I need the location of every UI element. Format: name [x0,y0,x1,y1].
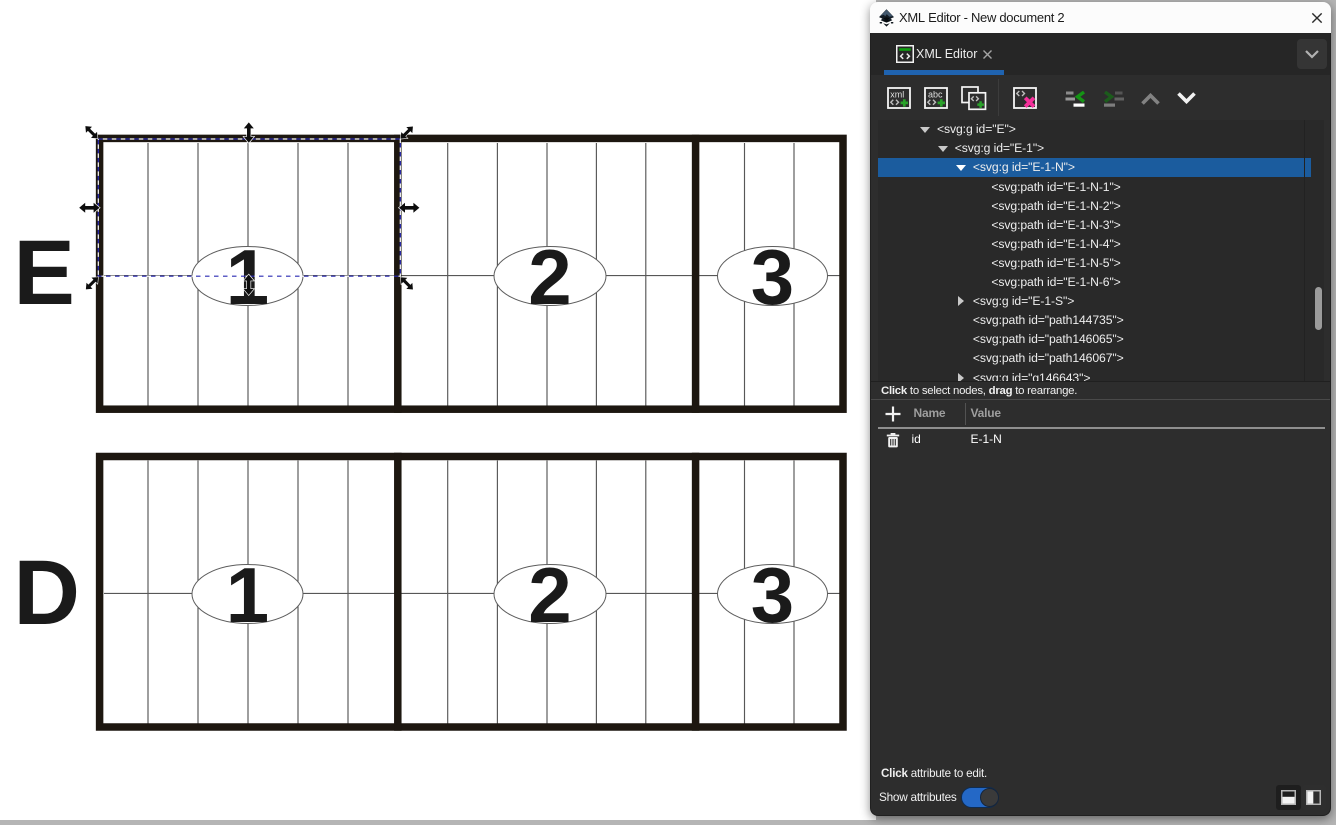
svg-text:D: D [14,542,80,644]
svg-text:E: E [14,222,75,324]
svg-text:3: 3 [751,551,794,639]
svg-text:1: 1 [226,551,269,639]
svg-text:abc: abc [928,89,943,99]
svg-text:xml: xml [890,89,904,99]
svg-text:2: 2 [528,551,571,639]
svg-text:2: 2 [528,233,571,321]
svg-text:3: 3 [751,233,794,321]
